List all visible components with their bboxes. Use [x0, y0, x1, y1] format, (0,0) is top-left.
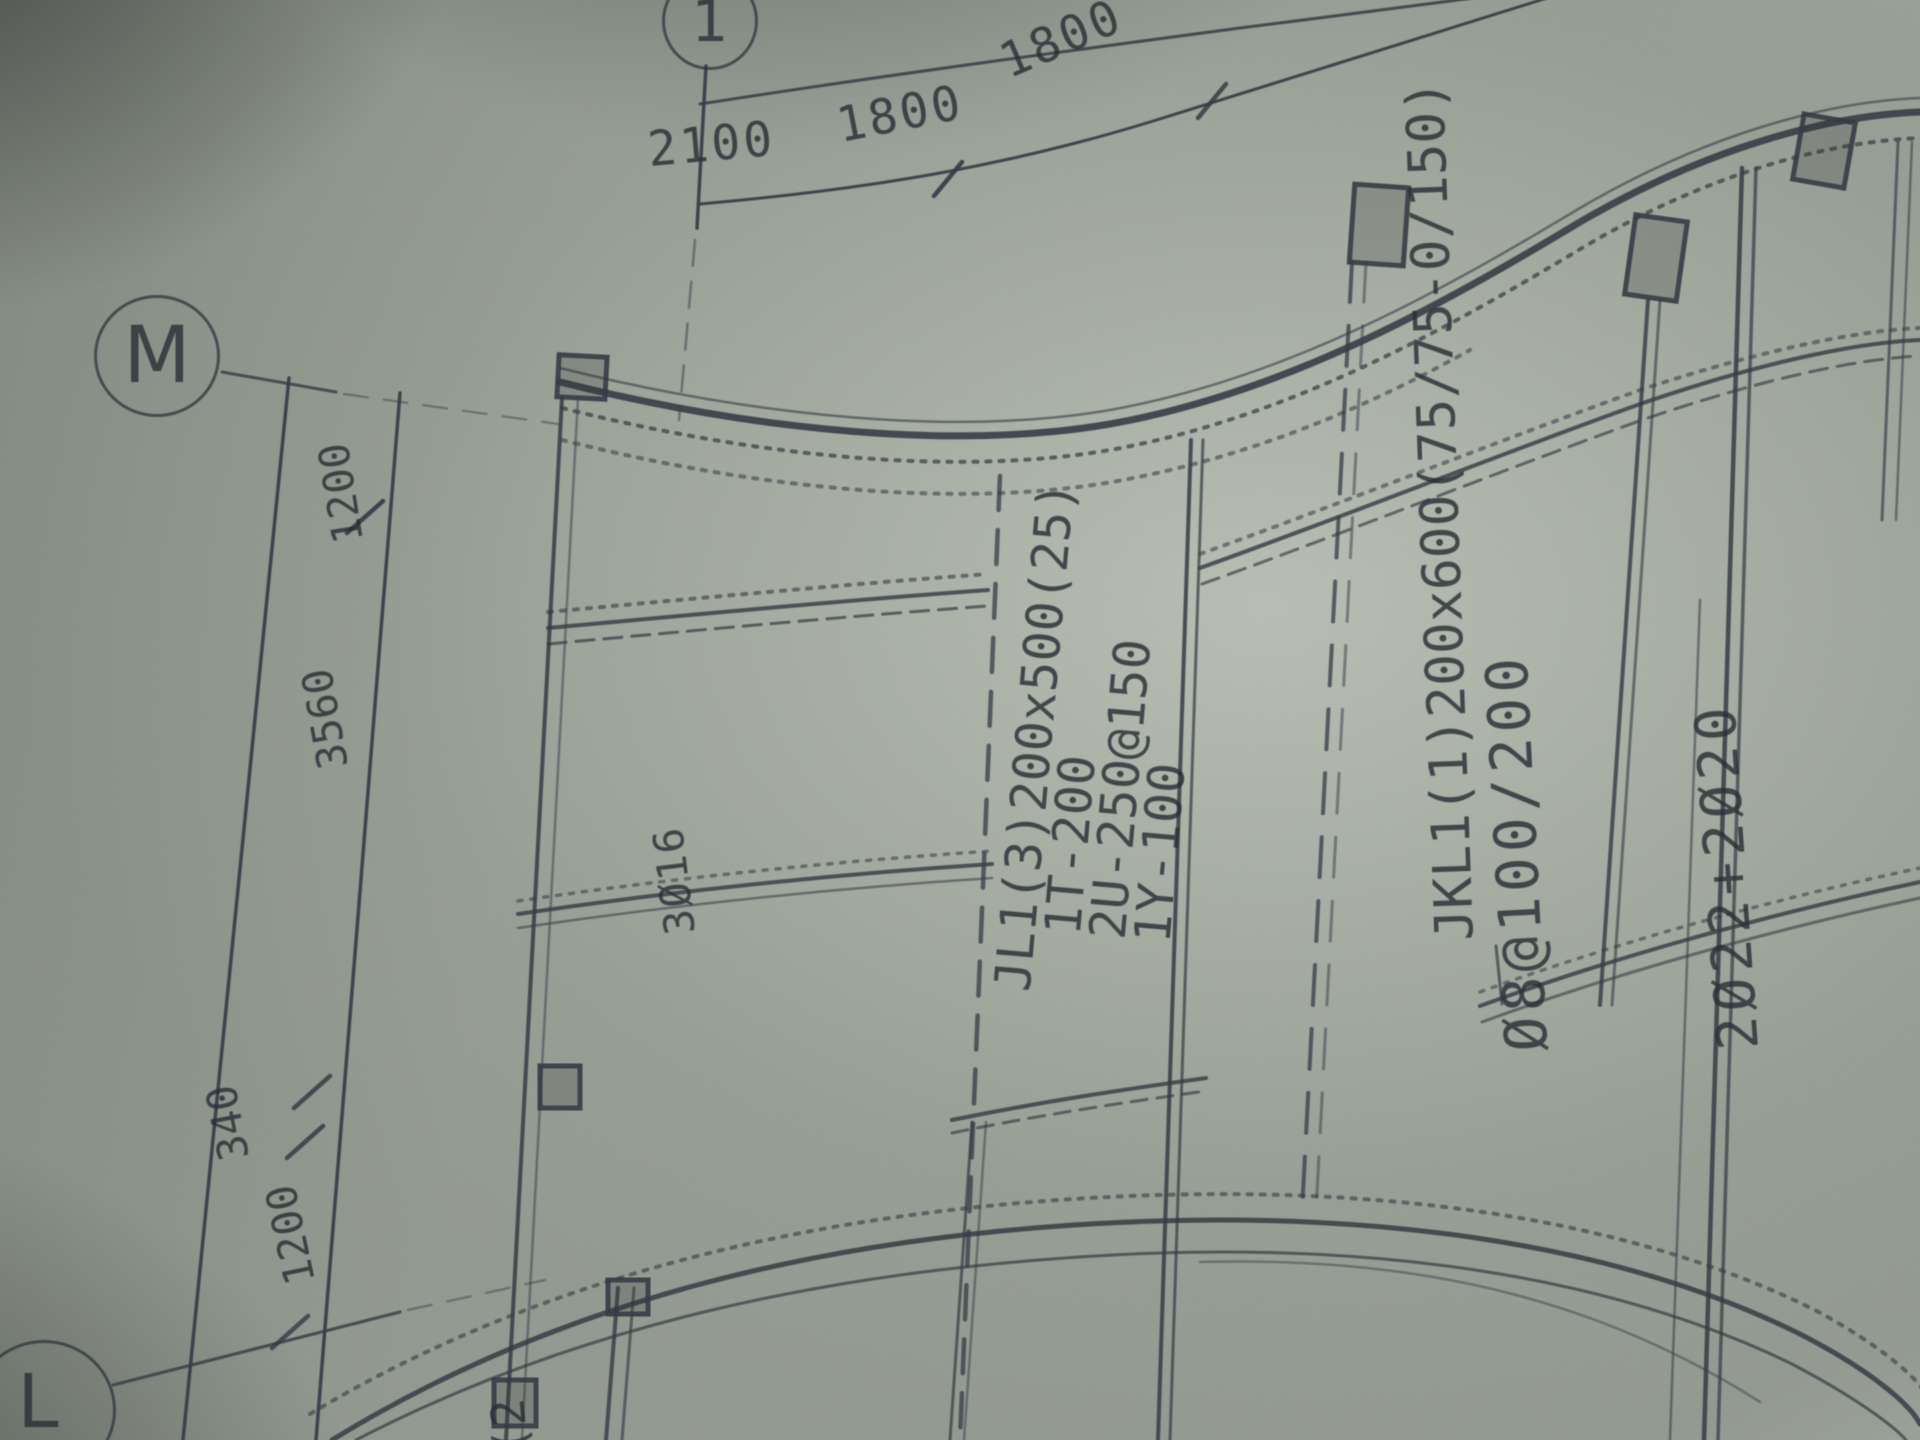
grid-bubble-m: M	[94, 295, 220, 417]
grid-label-2-partial-text: (2	[484, 1397, 535, 1440]
grid-bubble-1-label: 1	[692, 0, 729, 55]
grid-bubble-m-label: M	[123, 311, 190, 401]
slab-bars-text: 3Ø16	[647, 824, 702, 937]
dim-top-2100-text: 2100	[646, 115, 777, 174]
grid-bubble-l-label: L	[17, 1359, 58, 1440]
beam-label-group-text: JL1(3)200x500(25) 1T-200 2U-250@150 1Y-1…	[991, 480, 1215, 1005]
blueprint-photo: 1 M L 2100 1800 1800 1200 3560 340 1200 …	[0, 0, 1920, 1440]
